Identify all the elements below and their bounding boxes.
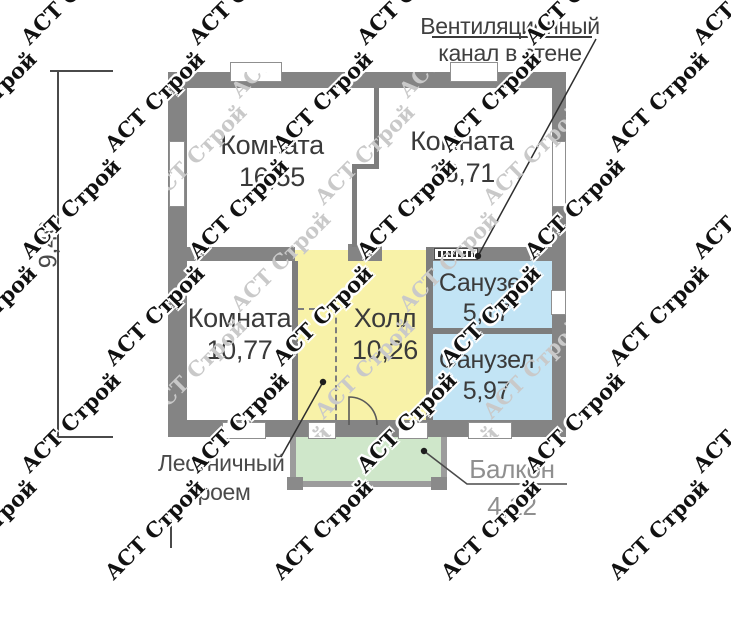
watermark: АСТ Строй bbox=[603, 46, 713, 156]
hall-area: 10,26 bbox=[325, 335, 445, 366]
watermark: АСТ Строй bbox=[267, 474, 377, 584]
watermark: АСТ Строй bbox=[687, 153, 731, 263]
ventilation-note-line2: канал в стене bbox=[415, 40, 605, 67]
bathroom-2-area: 5,97 bbox=[429, 377, 544, 406]
balcony-area: 4,12 bbox=[452, 491, 572, 522]
partition-room1-room2-lower bbox=[352, 167, 357, 247]
watermark: АСТ Строй bbox=[645, 313, 731, 423]
watermark: АСТ Строй bbox=[0, 46, 41, 156]
window-bottom-bathroom bbox=[468, 422, 512, 439]
watermark: АСТ Строй bbox=[57, 0, 167, 103]
partition-room1-room2-upper bbox=[374, 88, 379, 165]
watermark: АСТ Строй bbox=[687, 0, 731, 50]
watermark: АСТ Строй bbox=[0, 527, 83, 637]
window-right-wall bbox=[552, 141, 566, 207]
outer-wall-left bbox=[168, 72, 187, 437]
dimension-height-label: 9,40 bbox=[35, 212, 64, 278]
room-2-name: Комната bbox=[382, 126, 542, 157]
bathroom-1-area: 5,17 bbox=[429, 299, 544, 328]
watermark: АСТ Строй bbox=[141, 527, 251, 637]
room-1-name: Комната bbox=[192, 130, 352, 161]
ventilation-grille-stripes bbox=[438, 251, 474, 257]
room-1-area: 16,55 bbox=[192, 162, 352, 193]
room-2-area: 16,71 bbox=[382, 158, 542, 189]
outer-wall-top bbox=[168, 72, 566, 88]
watermark: АСТ Строй bbox=[15, 0, 125, 50]
watermark: АСТ Строй bbox=[645, 527, 731, 637]
watermark: АСТ Строй bbox=[0, 313, 83, 423]
ventilation-grille-icon bbox=[434, 248, 478, 260]
watermark: АСТ Строй bbox=[0, 99, 83, 209]
watermark: АСТ Строй bbox=[603, 260, 713, 370]
watermark: АСТ Строй bbox=[561, 206, 671, 316]
watermark: АСТ Строй bbox=[477, 527, 587, 637]
watermark: АСТ Строй bbox=[15, 367, 125, 477]
room-3-name: Комната bbox=[162, 303, 317, 334]
staircase-note-line2: проем bbox=[158, 479, 278, 506]
balcony-name: Балкон bbox=[452, 454, 572, 485]
wall-between-bathrooms bbox=[433, 328, 552, 334]
bathroom-1-name: Санузел bbox=[429, 269, 544, 298]
watermark: АСТ Строй bbox=[561, 420, 671, 530]
balcony-fill bbox=[296, 437, 441, 482]
window-left-wall bbox=[169, 141, 185, 207]
watermark: АСТ Строй bbox=[183, 0, 293, 50]
balcony-border-bottom bbox=[290, 481, 447, 487]
watermark: АСТ Строй bbox=[0, 474, 41, 584]
watermark: АСТ Строй bbox=[57, 420, 167, 530]
watermark: АСТ Строй bbox=[15, 153, 125, 263]
vent-box-top-left bbox=[230, 62, 282, 82]
balcony-foot-left bbox=[287, 477, 303, 490]
balcony-foot-right bbox=[431, 477, 447, 490]
window-bottom-hall-left bbox=[308, 422, 336, 439]
ventilation-note-line1: Вентиляционный bbox=[415, 13, 605, 40]
watermark: АСТ Строй bbox=[309, 527, 419, 637]
window-bottom-hall-right bbox=[398, 422, 428, 439]
outer-wall-right bbox=[552, 72, 566, 437]
bathroom-2-name: Санузел bbox=[429, 346, 544, 375]
staircase-note-line1: Лестничный bbox=[158, 450, 278, 477]
window-bottom-room3 bbox=[222, 422, 266, 439]
window-right-bathroom bbox=[551, 290, 566, 315]
watermark: АСТ Строй bbox=[57, 206, 167, 316]
watermark: АСТ Строй bbox=[603, 474, 713, 584]
inner-wall-room1-room3 bbox=[187, 247, 295, 261]
watermark: АСТ Строй bbox=[687, 367, 731, 477]
hall-name: Холл bbox=[325, 303, 445, 334]
watermark: АСТ Строй bbox=[645, 99, 731, 209]
room-3-area: 10,77 bbox=[162, 335, 317, 366]
floor-plan-page: { "watermark": { "text": "АСТ Строй" }, … bbox=[0, 0, 731, 548]
